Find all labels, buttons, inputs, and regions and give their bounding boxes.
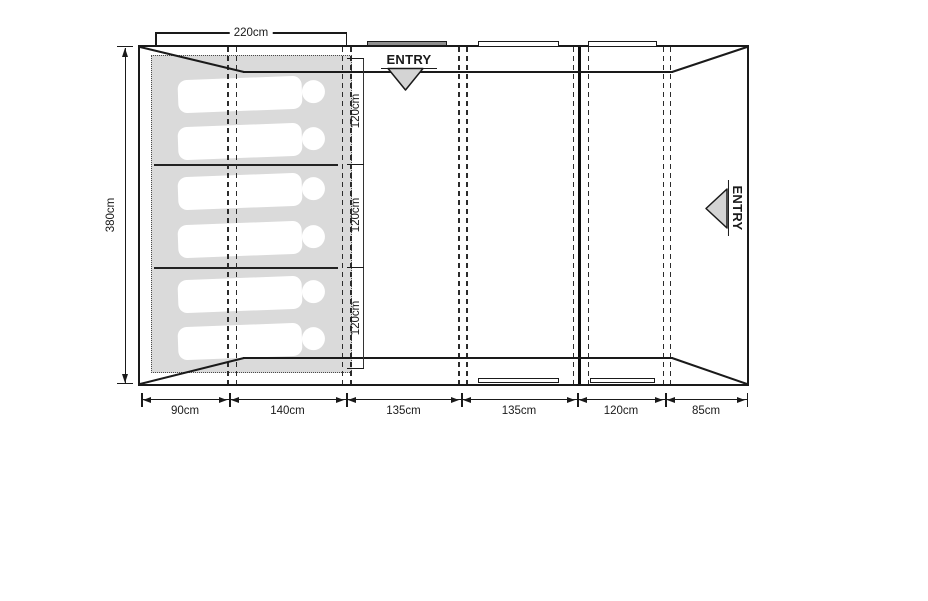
- dim-380-tick: [117, 46, 133, 47]
- arrow-right-icon: [219, 397, 227, 403]
- window-bar: [478, 41, 559, 47]
- arrow-down-icon: [122, 374, 128, 383]
- arrow-left-icon: [579, 397, 587, 403]
- dim-120-tick: [347, 164, 364, 165]
- arrow-right-icon: [655, 397, 663, 403]
- tent-outline: [138, 45, 749, 386]
- bottom-dim-label: 135cm: [386, 405, 421, 417]
- dim-120-tick: [347, 58, 364, 59]
- dim-220-tick: [346, 32, 348, 45]
- window-bar: [590, 378, 655, 384]
- arrow-right-icon: [737, 397, 745, 403]
- dim-120-tick: [347, 267, 364, 268]
- dim-380-line: [125, 48, 127, 383]
- dim-380-label: 380cm: [105, 194, 117, 237]
- dim-220-label: 220cm: [230, 27, 273, 39]
- entry-label-top: ENTRY: [381, 53, 437, 69]
- dim-380-tick: [117, 383, 133, 384]
- dim-120-bracket-line: [363, 58, 364, 369]
- arrow-left-icon: [231, 397, 239, 403]
- bottom-dim-label: 120cm: [604, 405, 639, 417]
- entry-label-side: ENTRY: [728, 180, 744, 236]
- bottom-dim-label: 135cm: [502, 405, 537, 417]
- dim-120-label: 120cm: [350, 301, 362, 336]
- arrow-left-icon: [348, 397, 356, 403]
- dim-120-label: 120cm: [350, 198, 362, 233]
- dim-120-label: 120cm: [350, 94, 362, 129]
- arrow-right-icon: [336, 397, 344, 403]
- bottom-dim-label: 90cm: [171, 405, 199, 417]
- window-bar: [478, 378, 559, 384]
- arrow-left-icon: [463, 397, 471, 403]
- tent-floorplan-diagram: ENTRY ENTRY 220cm 380cm 120cm 120cm 120c…: [0, 0, 928, 601]
- arrow-right-icon: [567, 397, 575, 403]
- dim-220-tick: [155, 32, 157, 45]
- door-bar-gray: [367, 41, 447, 47]
- arrow-left-icon: [143, 397, 151, 403]
- dim-120-tick: [347, 368, 364, 369]
- arrow-right-icon: [451, 397, 459, 403]
- bottom-dim-tick: [747, 393, 749, 407]
- arrow-up-icon: [122, 48, 128, 57]
- bottom-dim-label: 140cm: [270, 405, 305, 417]
- window-bar: [588, 41, 657, 47]
- arrow-left-icon: [667, 397, 675, 403]
- bottom-dim-label: 85cm: [692, 405, 720, 417]
